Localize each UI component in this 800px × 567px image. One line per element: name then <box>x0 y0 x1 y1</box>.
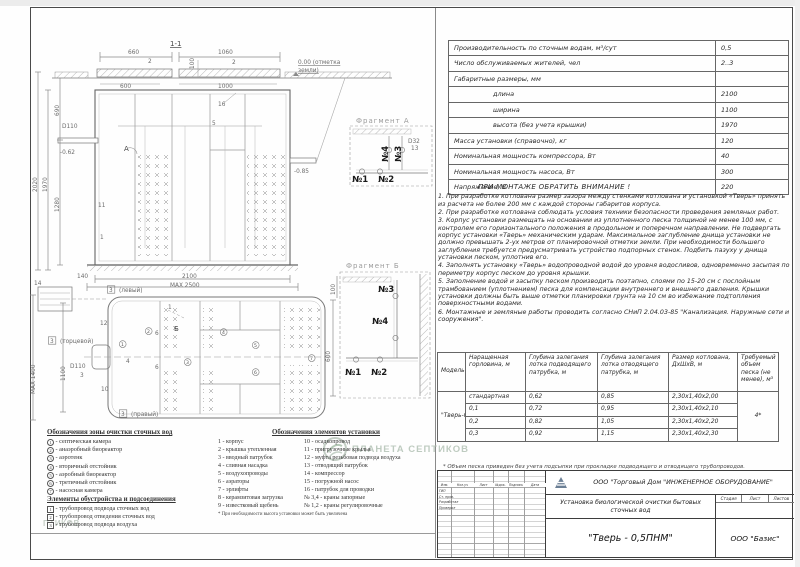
cell-label: №док. <box>493 483 508 487</box>
legend-item: 4 - сливная насадка <box>218 462 304 470</box>
spec-label: высота (без учета крышки) <box>449 118 716 133</box>
legend-item: 8 - керамзитовая загрузка <box>218 494 304 502</box>
scan-edge-right <box>795 0 800 567</box>
legend-marker: 2 <box>47 447 54 454</box>
legend-item: 7 - насосная камера <box>47 487 215 495</box>
sheets-header: Листов <box>769 495 794 502</box>
spec-value: 120 <box>716 133 789 148</box>
legend-item: 6 - третичный отстойник <box>47 479 215 487</box>
legend-marker: 3 <box>47 455 54 462</box>
table-row: Масса установки (справочно), кг120 <box>449 133 789 148</box>
spec-value: 40 <box>716 149 789 164</box>
legend-item: 16 - патрубок для проводки <box>304 486 434 494</box>
legend-item: 3 - трубопровод подвода воздуха <box>47 521 215 529</box>
drawing-sheet: 1-166021060210060010000.00 (отметказемли… <box>0 0 800 567</box>
table-row: Номинальная мощность насоса, Вт300 <box>449 164 789 179</box>
legend-item: 1 - корпус <box>218 438 304 446</box>
cell: 0,62 <box>526 392 598 404</box>
legend-item: 5 - аэробный биореактор <box>47 471 215 479</box>
legend-item: 6 - аэраторы <box>218 478 304 486</box>
legend-footnote: * При необходимости высота установки мож… <box>218 512 434 517</box>
legend-item: № 1,2 - краны регулировочные <box>304 502 434 510</box>
cell: 0,82 <box>526 416 598 428</box>
legend-item: 4 - вторичный отстойник <box>47 463 215 471</box>
legend-marker: 6 <box>47 480 54 487</box>
spec-value: 0,5 <box>716 41 789 56</box>
document-title: Установка биологической очистки бытовых … <box>546 495 716 519</box>
cell-label: Дата <box>524 483 546 487</box>
legend-marker: 1 <box>47 439 54 446</box>
spec-label: Габаритные размеры, мм <box>449 71 716 86</box>
note-item: 5. Заполнение водой и засыпку песком про… <box>438 278 790 307</box>
legend-title: Обозначения зоны очистки сточных вод <box>47 429 215 436</box>
legend-utility-items: 1 - трубопровод подвода сточных вод2 - т… <box>47 505 215 530</box>
spec-table: Производительность по сточным водам, м³/… <box>448 40 789 195</box>
cell-label: Лист <box>474 483 493 487</box>
cell: 0,3 <box>466 429 526 441</box>
legend-utility: Элементы обустройства и подсоединения 1 … <box>47 496 215 530</box>
installation-notes: ПРИ МОНТАЖЕ ОБРАТИТЬ ВНИМАНИЕ ! 1. При р… <box>438 183 790 324</box>
spec-label: Номинальная мощность компрессора, Вт <box>449 149 716 164</box>
cell: 0,72 <box>526 404 598 416</box>
table-row: длина2100 <box>449 87 789 102</box>
cell: 0,85 <box>598 392 669 404</box>
td-io-diamond-logo-icon <box>546 473 576 493</box>
cell: 0,2 <box>466 416 526 428</box>
document-name: "Тверь - 0,5ПНМ" <box>546 519 716 557</box>
legend-title: Элементы обустройства и подсоединения <box>47 496 215 503</box>
model-name: "Тверь-0,5ПНМ" <box>438 392 466 442</box>
column-header: Наращенная горловина, м <box>466 353 526 392</box>
table-row: 0,1 0,72 0,95 2,30х1,40х2,10 <box>438 404 779 416</box>
titleblock: Изм.Кол.учЛист№док.ПодписьДата ГИПСт. пр… <box>437 470 793 558</box>
cell-label: Проверил <box>439 506 473 512</box>
spec-value: 1970 <box>716 118 789 133</box>
note-item: 2. При разработке котлована соблюдать ус… <box>438 209 790 216</box>
table-row: высота (без учета крышки)1970 <box>449 118 789 133</box>
cell: 1,15 <box>598 429 669 441</box>
spec-value: 2100 <box>716 87 789 102</box>
spec-value: 1100 <box>716 102 789 117</box>
legend-item: 3 - вводный патрубок <box>218 454 304 462</box>
legend-zone-items: 1 - септическая камера2 - анаэробный био… <box>47 438 215 495</box>
spec-value: 2..3 <box>716 56 789 71</box>
spec-value <box>716 71 789 86</box>
scan-edge-top <box>0 0 800 6</box>
table-header-row: Модель Наращенная горловина, м Глубина з… <box>438 353 779 392</box>
revision-headers: Изм.Кол.учЛист№док.ПодписьДата <box>438 483 546 487</box>
note-item: 4. Заполнять установку «Тверь» водопрово… <box>438 262 790 277</box>
cell-label: Кол.уч <box>451 483 474 487</box>
table-row: 0,3 0,92 1,15 2,30х1,40х2,30 <box>438 429 779 441</box>
titleblock-company-row: ООО "Торговый Дом "ИНЖЕНЕРНОЕ ОБОРУДОВАН… <box>546 471 794 495</box>
spec-label: Масса установки (справочно), кг <box>449 133 716 148</box>
cell: 1,05 <box>598 416 669 428</box>
legend-item: 9 - известковый щебень <box>218 502 304 510</box>
legend-marker: 3 <box>47 522 54 529</box>
legend-item: 1 - трубопровод подвода сточных вод <box>47 505 215 513</box>
organization-name: ООО "Базис" <box>716 519 794 557</box>
note-item: 3. Корпус установки размещать на основан… <box>438 217 790 261</box>
table-row: Число обслуживаемых жителей, чел2..3 <box>449 56 789 71</box>
spec-label: ширина <box>449 102 716 117</box>
cell-label: Подпись <box>508 483 524 487</box>
cell: 2,30х1,40х2,20 <box>669 416 738 428</box>
column-header: Модель <box>438 353 466 392</box>
titleblock-stage-cells: Стадия Лист Листов <box>716 495 794 519</box>
legend-item: № 3,4 - краны запорные <box>304 494 434 502</box>
signature-row-labels: ГИПСт. пров.РазработалПроверил <box>439 489 473 511</box>
table-row: Номинальная мощность компрессора, Вт40 <box>449 149 789 164</box>
legend-item: 10 - осадкопровод <box>304 438 434 446</box>
sheet-header: Лист <box>742 495 768 502</box>
legend-elements: Обозначения элементов установки 1 - корп… <box>218 429 434 517</box>
legend-item: 13 - отводящий патрубок <box>304 462 434 470</box>
legend-marker: 5 <box>47 472 54 479</box>
legend-elements-col1: 1 - корпус2 - крышка утепленная3 - вводн… <box>218 438 304 510</box>
company-name: ООО "Торговый Дом "ИНЖЕНЕРНОЕ ОБОРУДОВАН… <box>576 479 794 487</box>
legend-zones: Обозначения зоны очистки сточных вод 1 -… <box>47 429 215 495</box>
note-item: 1. При разработке котлована размер зазор… <box>438 193 790 208</box>
column-header: Глубина залегания лотка подводящего патр… <box>526 353 598 392</box>
cell: 0,92 <box>526 429 598 441</box>
column-header: Глубина залегания лотка отводящего патру… <box>598 353 669 392</box>
model-table: Модель Наращенная горловина, м Глубина з… <box>437 352 779 442</box>
column-header: Размер котлована, ДхШхВ, м <box>669 353 738 392</box>
notes-title: ПРИ МОНТАЖЕ ОБРАТИТЬ ВНИМАНИЕ ! <box>478 183 790 191</box>
spec-label: длина <box>449 87 716 102</box>
legend-marker: 2 <box>47 514 54 521</box>
legend-item: 3 - аэротенк <box>47 454 215 462</box>
legend-item: 2 - крышка утепленная <box>218 446 304 454</box>
legend-elements-col2: 10 - осадкопровод11 - пригрузочные крыль… <box>304 438 434 510</box>
cell: стандартная <box>466 392 526 404</box>
sand-volume: 4* <box>738 392 779 442</box>
cell: 2,30х1,40х2,10 <box>669 404 738 416</box>
legend-marker: 1 <box>47 506 54 513</box>
cell: 0,1 <box>466 404 526 416</box>
cell: 0,95 <box>598 404 669 416</box>
cell: 2,30х1,40х2,30 <box>669 429 738 441</box>
legend-item: 7 - эрлифты <box>218 486 304 494</box>
note-item: 6. Монтажные и земляные работы проводить… <box>438 309 790 324</box>
titleblock-revision-grid: Изм.Кол.учЛист№док.ПодписьДата ГИПСт. пр… <box>438 471 546 557</box>
table-row: Производительность по сточным водам, м³/… <box>449 41 789 56</box>
column-divider <box>435 8 436 558</box>
table-row: ширина1100 <box>449 102 789 117</box>
legend-item: 12 - муфта резьбовая подвода воздуха <box>304 454 434 462</box>
cell: 2,30х1,40х2,00 <box>669 392 738 404</box>
legend-item: 1 - септическая камера <box>47 438 215 446</box>
legend-item: 2 - анаэробный биореактор <box>47 446 215 454</box>
legend-marker: 4 <box>47 464 54 471</box>
spec-value: 300 <box>716 164 789 179</box>
spec-label: Число обслуживаемых жителей, чел <box>449 56 716 71</box>
spec-label: Производительность по сточным водам, м³/… <box>449 41 716 56</box>
table-row: 0,2 0,82 1,05 2,30х1,40х2,20 <box>438 416 779 428</box>
spec-label: Номинальная мощность насоса, Вт <box>449 164 716 179</box>
stage-header: Стадия <box>716 495 742 502</box>
legend-title: Обозначения элементов установки <box>218 429 434 436</box>
legend-marker: 7 <box>47 488 54 495</box>
legend-item: 14 - компрессор <box>304 470 434 478</box>
legend-divider <box>31 533 435 534</box>
legend-item: 15 - погружной насос <box>304 478 434 486</box>
table-row: Габаритные размеры, мм <box>449 71 789 86</box>
legend-item: 5 - воздухопроводы <box>218 470 304 478</box>
cell-label: Изм. <box>438 483 451 487</box>
legend-item: 11 - пригрузочные крылья <box>304 446 434 454</box>
legend-item: 2 - трубопровод отведения сточных вод <box>47 513 215 521</box>
table-row: "Тверь-0,5ПНМ" стандартная 0,62 0,85 2,3… <box>438 392 779 404</box>
column-header: Требуемый объем песка (не менее), м³ <box>738 353 779 392</box>
